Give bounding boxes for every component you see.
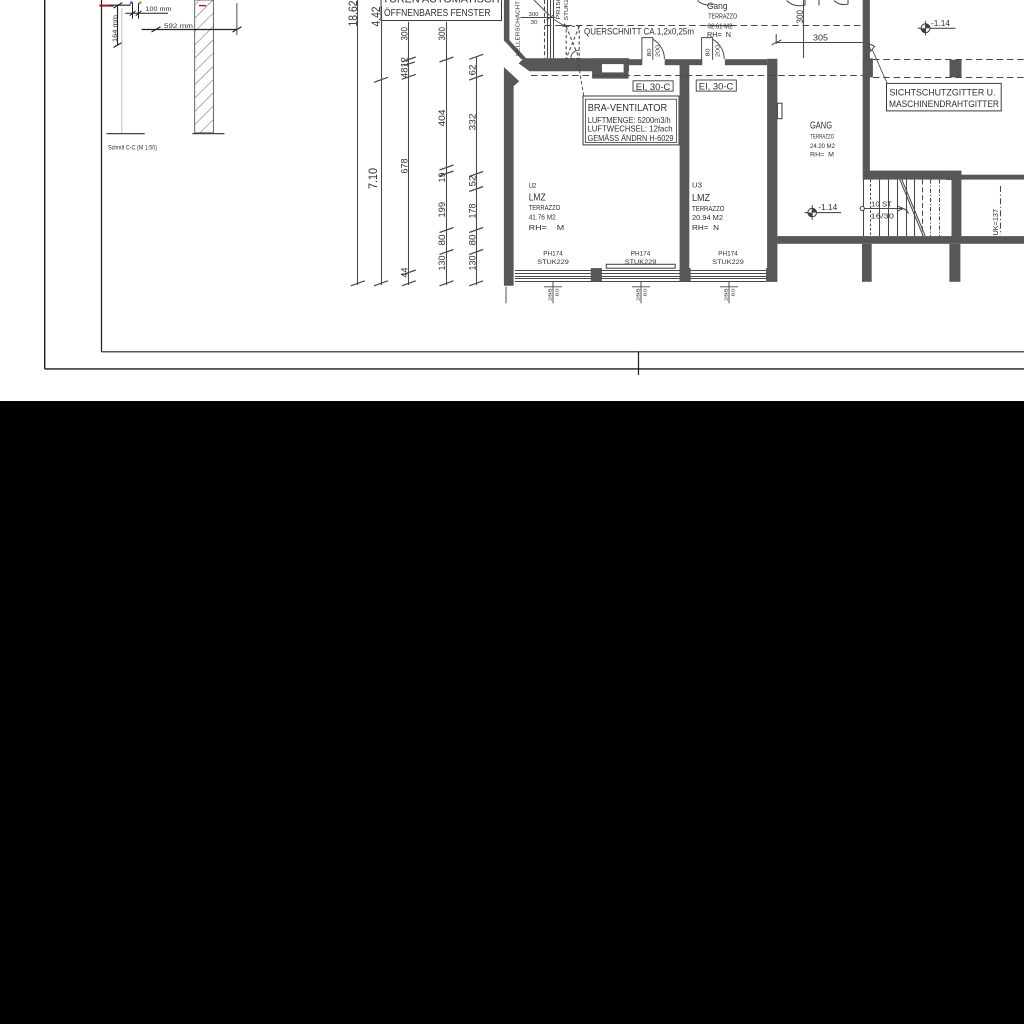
svg-text:60: 60 bbox=[643, 288, 648, 297]
svg-text:300: 300 bbox=[795, 10, 805, 24]
svg-text:80: 80 bbox=[647, 49, 653, 57]
svg-text:130: 130 bbox=[467, 255, 477, 270]
svg-text:RH= M: RH= M bbox=[810, 152, 834, 159]
svg-text:20.94 M2: 20.94 M2 bbox=[692, 215, 723, 222]
svg-text:60: 60 bbox=[731, 288, 736, 297]
svg-text:19: 19 bbox=[437, 172, 447, 182]
svg-text:80: 80 bbox=[706, 49, 712, 57]
svg-text:BRA-VENTILATOR: BRA-VENTILATOR bbox=[588, 103, 668, 114]
svg-text:18.62: 18.62 bbox=[348, 1, 360, 27]
svg-text:U2: U2 bbox=[529, 183, 537, 190]
svg-text:STUK229: STUK229 bbox=[625, 259, 657, 266]
svg-text:300: 300 bbox=[437, 27, 447, 41]
svg-text:RH= M: RH= M bbox=[529, 225, 565, 232]
svg-text:332: 332 bbox=[467, 113, 477, 130]
svg-text:592 mm: 592 mm bbox=[164, 23, 193, 30]
svg-text:TERRAZZO: TERRAZZO bbox=[810, 133, 834, 140]
svg-text:KELLERSCHACHT: KELLERSCHACHT bbox=[516, 0, 522, 56]
svg-text:U3: U3 bbox=[692, 183, 702, 190]
svg-text:678: 678 bbox=[399, 158, 409, 173]
svg-text:288: 288 bbox=[548, 288, 553, 301]
svg-text:100 mm: 100 mm bbox=[146, 7, 172, 13]
svg-text:TERRAZZO: TERRAZZO bbox=[692, 204, 725, 213]
svg-text:TUREN AUTOMATISCH: TUREN AUTOMATISCH bbox=[383, 0, 500, 6]
svg-text:200: 200 bbox=[656, 45, 662, 57]
svg-text:32.61 M2: 32.61 M2 bbox=[708, 23, 733, 30]
svg-text:PR156: PR156 bbox=[556, 0, 562, 20]
svg-text:404: 404 bbox=[437, 109, 447, 126]
svg-text:30: 30 bbox=[531, 20, 538, 26]
svg-text:STUK229: STUK229 bbox=[712, 259, 744, 266]
svg-text:80: 80 bbox=[467, 234, 477, 245]
svg-text:TERRAZZO: TERRAZZO bbox=[708, 13, 737, 20]
svg-text:60: 60 bbox=[555, 288, 560, 297]
svg-text:GEMÄSS ÄNDRN H-6029: GEMÄSS ÄNDRN H-6029 bbox=[588, 134, 675, 143]
svg-text:-1.14: -1.14 bbox=[931, 19, 951, 28]
svg-text:MASCHINENDRAHTGITTER: MASCHINENDRAHTGITTER bbox=[889, 99, 999, 109]
svg-text:UK=137: UK=137 bbox=[991, 209, 1000, 236]
svg-text:LMZ: LMZ bbox=[529, 192, 546, 204]
svg-text:STUK229: STUK229 bbox=[564, 0, 570, 21]
svg-text:41.76 M2: 41.76 M2 bbox=[529, 215, 556, 222]
svg-text:130: 130 bbox=[437, 255, 447, 270]
svg-text:24.20 M2: 24.20 M2 bbox=[810, 143, 835, 150]
svg-text:TERRAZZO: TERRAZZO bbox=[529, 205, 561, 212]
svg-text:178: 178 bbox=[467, 203, 477, 218]
svg-text:62: 62 bbox=[467, 64, 477, 75]
svg-text:10 ST: 10 ST bbox=[871, 200, 893, 209]
svg-text:305: 305 bbox=[813, 33, 828, 43]
svg-text:LUFTWECHSEL: 12fach: LUFTWECHSEL: 12fach bbox=[588, 125, 673, 134]
svg-text:SICHTSCHUTZGITTER U.: SICHTSCHUTZGITTER U. bbox=[890, 87, 996, 97]
svg-text:Schnitt C-C (M 1:50): Schnitt C-C (M 1:50) bbox=[108, 146, 157, 152]
svg-text:QUERSCHNITT CA.1,2x0,25m: QUERSCHNITT CA.1,2x0,25m bbox=[584, 27, 694, 37]
svg-text:STUK229: STUK229 bbox=[537, 259, 569, 266]
svg-text:164 mm: 164 mm bbox=[113, 15, 119, 42]
svg-text:4.42: 4.42 bbox=[371, 7, 383, 27]
svg-text:7.10: 7.10 bbox=[368, 168, 380, 189]
svg-text:ÖFFNENBARES FENSTER: ÖFFNENBARES FENSTER bbox=[384, 7, 491, 19]
svg-text:200: 200 bbox=[716, 45, 722, 57]
svg-text:80: 80 bbox=[437, 234, 447, 245]
svg-text:LMZ: LMZ bbox=[692, 192, 711, 204]
svg-text:44: 44 bbox=[399, 267, 409, 277]
svg-text:GANG: GANG bbox=[810, 120, 832, 132]
svg-text:-1.14: -1.14 bbox=[818, 203, 838, 212]
svg-text:300: 300 bbox=[529, 12, 539, 18]
svg-text:PH174: PH174 bbox=[543, 251, 563, 258]
svg-text:288: 288 bbox=[636, 288, 641, 301]
svg-text:300: 300 bbox=[399, 27, 409, 41]
svg-text:EI, 30-C: EI, 30-C bbox=[636, 82, 671, 92]
svg-text:RH= N: RH= N bbox=[692, 223, 719, 232]
svg-text:PH174: PH174 bbox=[718, 251, 738, 258]
svg-text:288: 288 bbox=[724, 288, 729, 301]
svg-text:RH= N: RH= N bbox=[707, 32, 731, 39]
svg-text:Gang: Gang bbox=[707, 1, 728, 12]
svg-text:199: 199 bbox=[437, 202, 447, 218]
svg-text:52: 52 bbox=[467, 175, 477, 186]
svg-text:4812: 4812 bbox=[399, 57, 409, 78]
svg-text:16/30: 16/30 bbox=[871, 212, 895, 221]
svg-text:EI, 30-C: EI, 30-C bbox=[699, 82, 734, 92]
svg-text:PH174: PH174 bbox=[631, 251, 651, 258]
